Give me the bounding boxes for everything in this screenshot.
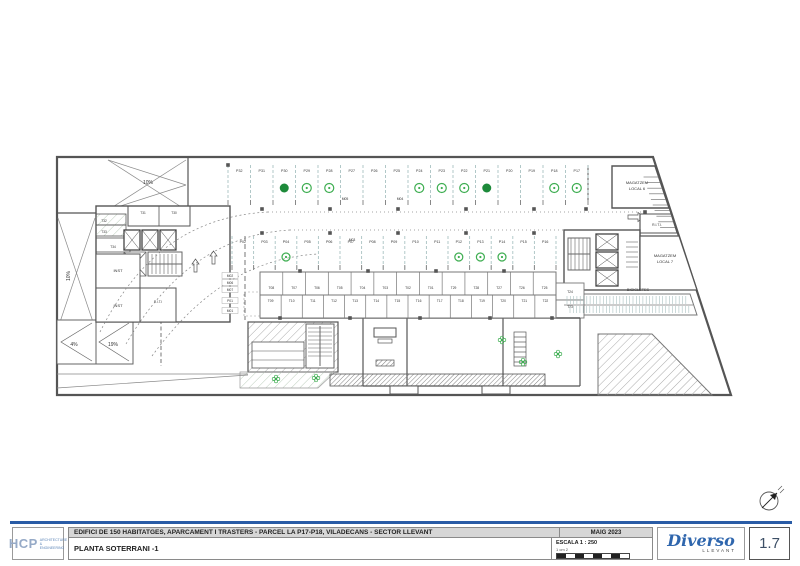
traster-label: T08 — [269, 286, 275, 290]
ramp-4-label: 4% — [70, 342, 78, 348]
column-marker — [260, 207, 264, 211]
green-ev-marker-dot — [418, 187, 420, 189]
side-tag-label: M06 — [227, 281, 234, 285]
parking-stall-label: P12 — [456, 240, 462, 244]
traster-label: T09 — [268, 299, 274, 303]
diverso-logo: Diverso LLEVANT — [657, 527, 745, 560]
traster-t24-label: T24 — [567, 290, 573, 294]
parking-stall-label: P15 — [520, 240, 526, 244]
traster-label: T10 — [289, 299, 295, 303]
parking-stall-label: P29 — [304, 169, 310, 173]
riti-top-label: R.I.T.I. — [652, 223, 662, 227]
traster-label: T03 — [382, 286, 388, 290]
side-tag-label: M01 — [227, 309, 234, 313]
traster-label: T06 — [314, 286, 320, 290]
parking-stall-label: P14 — [499, 240, 505, 244]
parking-stall-label: P24 — [416, 169, 422, 173]
retaining-wall-hatch — [330, 374, 545, 386]
column-marker — [348, 316, 352, 320]
moto-m05-label: M05 — [342, 197, 349, 201]
parking-stall-label: P23 — [439, 169, 445, 173]
parking-stall-label: P06 — [326, 240, 332, 244]
traster-label: T27 — [496, 286, 502, 290]
parking-stall-label: P22 — [461, 169, 467, 173]
green-ev-marker-dot — [576, 187, 578, 189]
bench-icon — [376, 360, 394, 366]
traster-label: T17 — [437, 299, 443, 303]
parking-stall-label: P08 — [369, 240, 375, 244]
diverso-logo-sub: LLEVANT — [702, 548, 736, 553]
diverso-logo-text: Diverso — [667, 534, 735, 548]
column-marker — [226, 163, 230, 167]
scale-text: ESCALA 1 : 250 — [556, 540, 648, 546]
magatzem7-label-2: LOCAL 7 — [657, 259, 674, 264]
bottom-stair — [306, 324, 334, 368]
traster-label: T02 — [405, 286, 411, 290]
parking-stall-label: P20 — [506, 169, 512, 173]
ramp-19-label: 19% — [108, 342, 119, 348]
traster-label: T22 — [543, 299, 549, 303]
green-ev-marker — [482, 184, 491, 193]
green-ev-marker-dot — [306, 187, 308, 189]
column-marker — [396, 231, 400, 235]
date-cell: MAIG 2023 — [559, 528, 652, 537]
green-ev-marker — [280, 184, 289, 193]
parking-stall-label: P07 — [348, 240, 354, 244]
traster-label: T01 — [428, 286, 434, 290]
parking-stall-label: P13 — [477, 240, 483, 244]
parking-stall-label: P32 — [236, 169, 242, 173]
parking-stall-label: P21 — [484, 169, 490, 173]
traster-label: T26 — [519, 286, 525, 290]
traster-t31-label: T31 — [140, 211, 146, 215]
traster-label: T20 — [500, 299, 506, 303]
parking-stall-label: P27 — [349, 169, 355, 173]
traster-t30-label: T30 — [171, 211, 177, 215]
magatzem6-label-2: LOCAL 6 — [629, 186, 646, 191]
parking-stall-label: P19 — [529, 169, 535, 173]
parking-stall-label: P25 — [394, 169, 400, 173]
column-marker — [396, 207, 400, 211]
traster-label: T25 — [542, 286, 548, 290]
green-ev-marker-dot — [553, 187, 555, 189]
parking-stall-label: P17 — [574, 169, 580, 173]
parking-stall-label: P03 — [261, 240, 267, 244]
column-marker — [488, 316, 492, 320]
side-tag-label: M02 — [227, 274, 234, 278]
column-marker — [298, 269, 302, 273]
traster-label: T13 — [352, 299, 358, 303]
green-ev-marker-dot — [501, 256, 503, 258]
sheet-number: 1.7 — [749, 527, 790, 560]
side-tag-label: M07 — [227, 288, 234, 292]
parking-stall-label: P31 — [259, 169, 265, 173]
parking-stall-label: P30 — [281, 169, 287, 173]
ramp-left-label: 10% — [66, 270, 72, 281]
ramp-top-label: 10% — [143, 180, 154, 186]
project-title: EDIFICI DE 150 HABITATGES, APARCAMENT I … — [69, 529, 559, 536]
column-marker — [532, 207, 536, 211]
traster-label: T29 — [451, 286, 457, 290]
traster-t34-label: T34 — [110, 245, 116, 249]
graphic-scale-bar — [556, 553, 630, 559]
column-marker — [366, 269, 370, 273]
column-marker — [584, 207, 588, 211]
moto-m04-label: M04 — [397, 197, 404, 201]
green-ev-marker-dot — [479, 256, 481, 258]
column-marker — [434, 269, 438, 273]
parking-stall-label: P26 — [371, 169, 377, 173]
drawing-title: PLANTA SOTERRANI -1 — [69, 538, 551, 559]
magatzem6-label-1: MAGATZEM — [626, 180, 648, 185]
parking-stall-label: P18 — [551, 169, 557, 173]
hcp-tagline-2: & ENGINEERING — [40, 542, 67, 550]
traster-row-frame — [260, 272, 556, 295]
traster-label: T12 — [331, 299, 337, 303]
green-ev-marker-dot — [441, 187, 443, 189]
traster-label: T05 — [337, 286, 343, 290]
parking-stall-label: P11 — [434, 240, 440, 244]
green-ev-marker-dot — [285, 256, 287, 258]
traster-label: T28 — [473, 286, 479, 290]
ramp-boxes — [57, 320, 133, 364]
scale-bar-label: 1 cm 2 — [556, 547, 648, 552]
vent-grille-2 — [482, 386, 510, 394]
magatzem7-label-1: MAGATZEM — [654, 253, 676, 258]
column-marker — [532, 231, 536, 235]
side-tag-label: P01 — [227, 299, 233, 303]
right-elevators — [596, 234, 618, 286]
parking-stall-label: P16 — [542, 240, 548, 244]
titleblock-main: EDIFICI DE 150 HABITATGES, APARCAMENT I … — [68, 527, 653, 560]
scale-cell: ESCALA 1 : 250 1 cm 2 — [551, 538, 652, 559]
parking-stall-label: P10 — [412, 240, 418, 244]
floor-plan-drawing: 10% 10% 4% 19% — [0, 0, 800, 566]
column-marker — [464, 231, 468, 235]
garden-walkway — [240, 372, 335, 388]
north-arrow-icon — [760, 486, 784, 510]
traster-label: T11 — [310, 299, 316, 303]
column-marker — [502, 269, 506, 273]
parking-stall-label: P02 — [240, 240, 246, 244]
column-marker — [328, 231, 332, 235]
column-marker — [328, 207, 332, 211]
titleblock-rule — [10, 521, 792, 524]
traster-t33-label: T33 — [101, 230, 107, 234]
traster-label: T16 — [416, 299, 422, 303]
column-marker — [278, 316, 282, 320]
parking-stall-label: P04 — [283, 240, 289, 244]
parking-stall-label: P09 — [391, 240, 397, 244]
column-marker — [418, 316, 422, 320]
traster-label: T18 — [458, 299, 464, 303]
traster-label: T19 — [479, 299, 485, 303]
traster-label: T14 — [373, 299, 379, 303]
traster-label: T15 — [395, 299, 401, 303]
bicicletes-label: BICICLETES — [627, 288, 650, 292]
hcp-logo-text: HCP — [9, 536, 38, 551]
column-marker — [550, 316, 554, 320]
inst1-label: INST — [113, 268, 123, 273]
vent-grille-1 — [390, 386, 418, 394]
column-marker — [643, 210, 647, 214]
traster-label: T21 — [521, 299, 527, 303]
traster-label: T04 — [360, 286, 366, 290]
parking-stall-label: P05 — [304, 240, 310, 244]
green-ev-marker-dot — [328, 187, 330, 189]
inst2-label: INST — [113, 303, 123, 308]
green-ev-marker-dot — [463, 187, 465, 189]
parking-stall-label: P28 — [326, 169, 332, 173]
traster-t32-label: T32 — [101, 219, 107, 223]
green-ev-marker-dot — [458, 256, 460, 258]
left-elevators — [124, 230, 176, 250]
column-marker — [260, 231, 264, 235]
hcp-logo: HCP ARCHITECTURE & ENGINEERING — [12, 527, 64, 560]
column-marker — [464, 207, 468, 211]
traster-label: T07 — [291, 286, 297, 290]
